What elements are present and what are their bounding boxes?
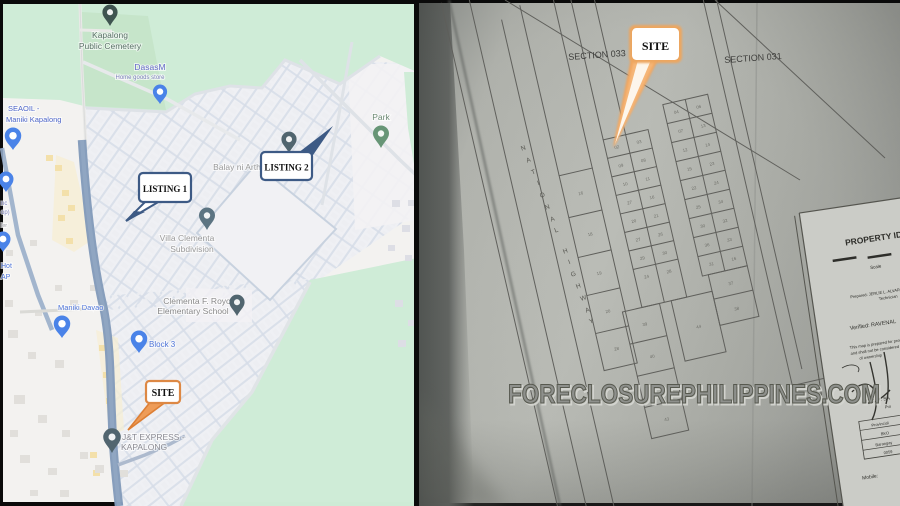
svg-text:Balay ni Arth: Balay ni Arth <box>213 162 261 172</box>
svg-text:LISTING 2: LISTING 2 <box>264 163 309 173</box>
svg-text:Subdivision: Subdivision <box>170 244 214 254</box>
svg-text:Clementa F. Royo: Clementa F. Royo <box>163 296 231 306</box>
svg-text:SEAOIL -: SEAOIL - <box>8 104 40 113</box>
svg-text:LISTING 1: LISTING 1 <box>143 184 188 194</box>
svg-text:Home goods store: Home goods store <box>115 75 165 81</box>
svg-text:Villa Clementa: Villa Clementa <box>160 233 215 243</box>
svg-text:FORECLOSUREPHILIPPINES.COM: FORECLOSUREPHILIPPINES.COM <box>508 379 880 409</box>
svg-text:DasasM: DasasM <box>134 62 165 72</box>
svg-text:SITE: SITE <box>642 39 669 53</box>
svg-text:KAPALONG: KAPALONG <box>121 442 167 452</box>
svg-text:op): op) <box>1 210 10 216</box>
svg-text:Kapalong: Kapalong <box>92 30 128 40</box>
svg-text:Maniki Davao: Maniki Davao <box>58 303 103 312</box>
svg-text:Hot: Hot <box>1 263 12 270</box>
svg-text:Elementary School: Elementary School <box>157 306 228 316</box>
svg-text:nc: nc <box>1 201 7 207</box>
svg-text:AP: AP <box>1 274 11 281</box>
svg-text:Block 3: Block 3 <box>149 340 176 349</box>
svg-text:J&T EXPRESS -: J&T EXPRESS - <box>122 432 185 442</box>
svg-text:SITE: SITE <box>152 388 175 399</box>
svg-text:Park: Park <box>372 112 390 122</box>
svg-text:Public Cemetery: Public Cemetery <box>79 41 142 51</box>
svg-text:Maniki Kapalong: Maniki Kapalong <box>6 115 61 124</box>
svg-text:ler: ler <box>1 223 7 229</box>
